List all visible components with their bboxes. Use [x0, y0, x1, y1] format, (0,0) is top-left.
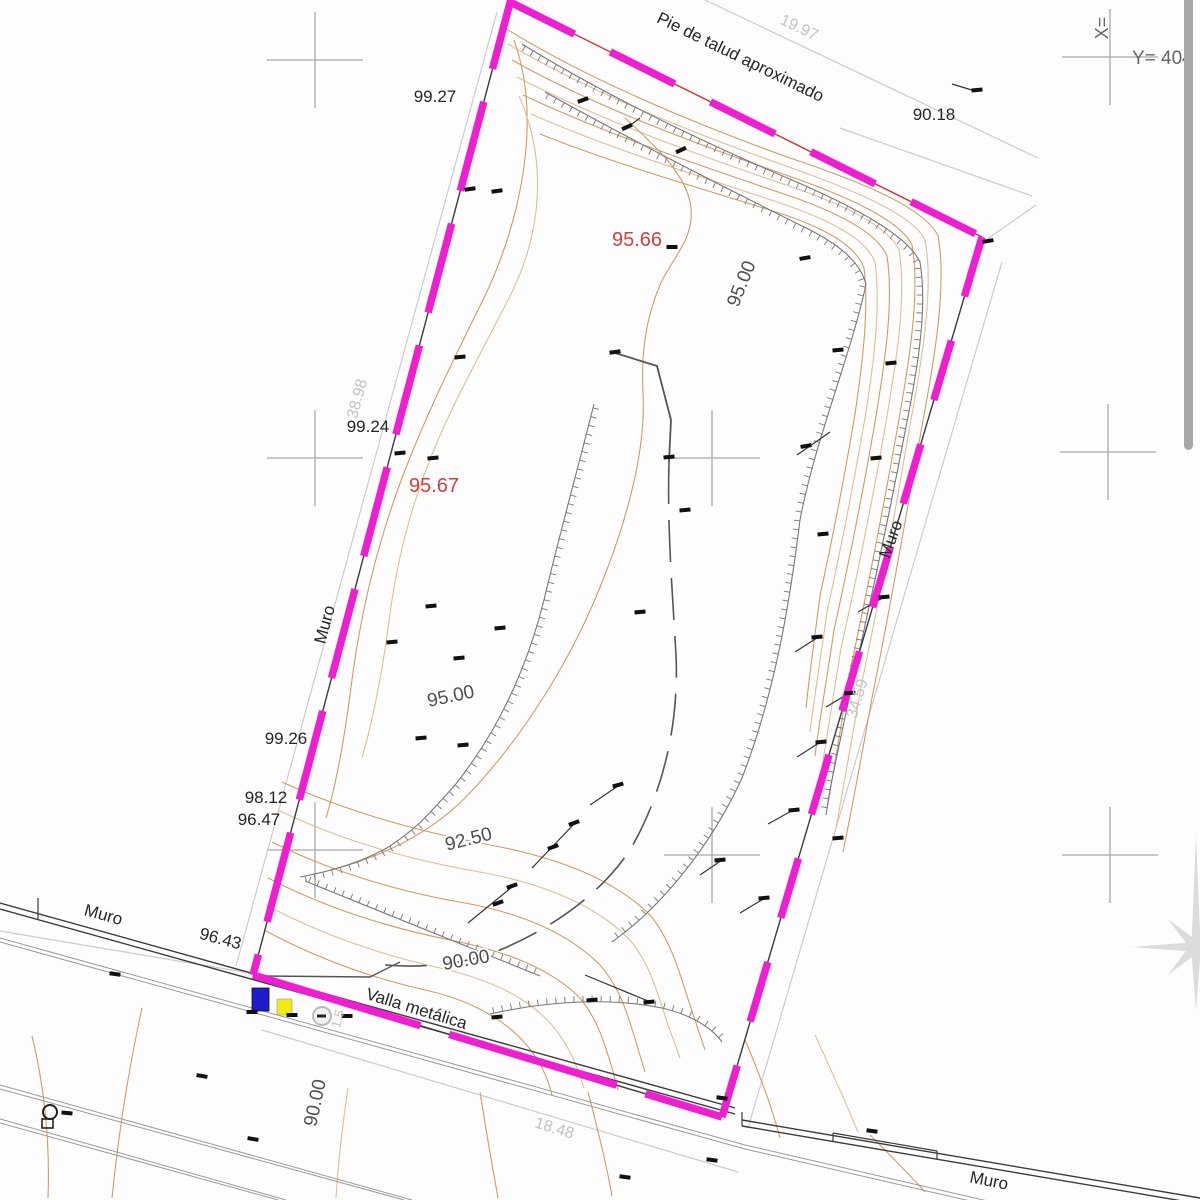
spot-leader-line [590, 786, 618, 805]
slope-tick [546, 591, 552, 592]
slope-tick [858, 294, 864, 295]
slope-tick [561, 103, 564, 108]
slope-tick [712, 1027, 716, 1032]
slope-tick [529, 651, 535, 653]
slope-tick [409, 918, 411, 924]
slope-tick [804, 476, 810, 478]
slope-tick [309, 877, 311, 883]
slope-tick [508, 701, 513, 704]
slope-tick [577, 469, 583, 471]
spot-elevation-marker [799, 255, 811, 261]
spot-elevation-marker [706, 1157, 717, 1162]
spot-elevation-marker [758, 896, 769, 901]
slope-tick [737, 195, 740, 200]
spot-leader-line [797, 432, 830, 455]
slope-tick [550, 573, 556, 574]
slope-tick [570, 495, 576, 497]
slope-tick [615, 933, 619, 938]
slope-tick [744, 756, 750, 758]
slope-tick [769, 211, 772, 216]
boundary-edge-right [722, 237, 982, 1117]
spot-elevation-marker [109, 971, 120, 976]
spot-elevation-marker [494, 626, 505, 631]
spot-elevation-marker [619, 1174, 630, 1179]
slope-tick [585, 116, 588, 121]
slope-tick [785, 219, 788, 224]
slope-tick [906, 392, 912, 393]
slope-tick [546, 94, 549, 99]
spot-elevation-marker [675, 146, 687, 154]
slope-tick [517, 961, 519, 967]
slope-tick [800, 493, 806, 494]
slope-tick [823, 798, 829, 799]
slope-tick [734, 781, 739, 784]
slope-tick [678, 871, 683, 875]
label-18-48: 18.48 [533, 1115, 576, 1143]
spot-elevation-marker [61, 1111, 72, 1116]
slope-tick [777, 215, 780, 220]
slope-tick [796, 511, 802, 512]
slope-tick [741, 765, 747, 767]
slope-tick [510, 1004, 511, 1010]
slope-tick [519, 1002, 520, 1008]
slope-tick [525, 660, 531, 662]
slope-tick [633, 107, 636, 112]
slope-tick [841, 355, 847, 357]
slope-tick [641, 145, 644, 150]
slope-tick [784, 591, 790, 592]
slope-tick [350, 894, 352, 900]
slope-tick [641, 111, 644, 116]
slope-tick [755, 722, 761, 724]
spot-elevation-marker [491, 1015, 502, 1020]
slope-tick [340, 867, 342, 873]
slope-tick [323, 872, 324, 878]
slope-tick [628, 922, 632, 927]
spot-elevation-marker [679, 508, 690, 513]
label-muro: Muro [968, 1168, 1010, 1194]
slope-tick [896, 445, 902, 446]
slope-tick [673, 127, 676, 132]
slope-tick [681, 1008, 683, 1014]
slope-tick [568, 504, 574, 506]
contour-line [112, 1008, 142, 1198]
label-98-12: 98.12 [245, 788, 288, 807]
slope-tick [519, 677, 525, 679]
slope-tick [721, 186, 724, 191]
slope-tick [694, 849, 699, 852]
slope-tick [635, 916, 639, 920]
slope-tick [580, 460, 586, 462]
slope-tick [548, 582, 554, 583]
slope-tick [776, 635, 782, 636]
slope-tick [900, 428, 906, 429]
slope-tick [763, 169, 765, 174]
slope-tick [911, 366, 917, 367]
slope-tick [509, 958, 511, 964]
slope-tick [794, 520, 800, 521]
slope-tick [868, 219, 871, 224]
slope-tick [544, 600, 550, 601]
spot-elevation-marker [196, 1073, 208, 1079]
label-99-27: 99.27 [414, 87, 457, 106]
road-edge-line [0, 1123, 278, 1200]
lamp-post-base [42, 1119, 53, 1128]
label-x-: X= [1092, 17, 1112, 40]
spot-elevation-marker [547, 843, 559, 851]
slope-tick [838, 363, 844, 365]
wall-line [742, 1126, 1200, 1200]
slope-tick [657, 154, 660, 159]
slope-tick [824, 240, 827, 245]
slope-tick [471, 763, 476, 766]
spot-elevation-marker [427, 456, 438, 461]
slope-tick [897, 239, 901, 244]
label-muro: Muro [82, 900, 124, 928]
site-plan-viewport: Pie de talud aproximado19.9790.1899.2795… [0, 0, 1200, 1200]
spot-elevation-marker [425, 604, 436, 609]
scrollbar-thumb[interactable] [1184, 0, 1193, 450]
contour-line [588, 1092, 612, 1196]
spot-elevation-marker [491, 188, 502, 193]
slope-tick [793, 223, 796, 228]
label-muro: Muro [310, 603, 338, 645]
slope-tick [486, 741, 491, 744]
slope-tick [708, 827, 713, 830]
slope-tick [673, 162, 676, 167]
slope-tick [566, 512, 572, 514]
slope-tick [455, 785, 460, 789]
slope-tick [828, 771, 834, 772]
slope-tick [772, 653, 778, 654]
spot-elevation-marker [866, 1128, 877, 1133]
slope-tick [811, 449, 817, 451]
label-96-43: 96.43 [197, 924, 243, 953]
slope-tick [584, 443, 590, 445]
slope-tick [367, 901, 369, 907]
label-95-67: 95.67 [409, 475, 459, 497]
label-1-5: 1.5 [328, 1008, 347, 1029]
slope-tick [689, 135, 692, 140]
spot-elevation-marker [612, 782, 624, 789]
slope-tick [915, 268, 921, 269]
dimension-line [705, 0, 1038, 158]
slope-tick [903, 410, 909, 411]
slope-tick [891, 472, 897, 473]
label-92-50: 92.50 [443, 824, 494, 856]
slope-tick [534, 634, 540, 636]
slope-tick [575, 478, 581, 480]
slope-tick [790, 547, 796, 548]
slope-tick [793, 529, 799, 530]
breakline-dashed [385, 462, 676, 966]
road-edge-line [0, 1089, 404, 1200]
slope-tick [461, 778, 466, 782]
slope-tick [660, 891, 664, 895]
slope-tick [866, 595, 872, 596]
slope-tick [809, 458, 815, 460]
slope-tick [718, 812, 723, 815]
spot-elevation-marker [247, 1136, 259, 1142]
slope-tick [434, 928, 436, 934]
spot-elevation-marker [492, 899, 504, 907]
spot-elevation-marker [577, 96, 589, 104]
slope-tick [778, 627, 784, 628]
slope-tick [699, 842, 704, 845]
slope-tick [845, 256, 849, 260]
slope-tick [400, 914, 402, 920]
slope-tick [577, 111, 580, 116]
label-19-97: 19.97 [777, 12, 821, 45]
slope-tick [522, 668, 528, 670]
spot-elevation-marker [714, 858, 725, 863]
slope-tick [559, 539, 565, 540]
slope-tick [672, 1005, 674, 1011]
slope-tick [726, 797, 731, 800]
slope-tick [628, 997, 629, 1003]
contour-line [480, 1092, 498, 1198]
slope-tick [902, 419, 908, 420]
contour-line [517, 77, 902, 780]
slope-tick [539, 617, 545, 619]
slope-tick [437, 805, 441, 809]
contour-line [540, 134, 866, 708]
slope-tick [586, 434, 592, 435]
slope-tick [512, 693, 517, 696]
slope-tick [779, 618, 785, 619]
slope-tick [425, 924, 427, 930]
slope-tick [493, 1007, 494, 1013]
contour-line [268, 878, 618, 1090]
slope-tick [822, 415, 828, 417]
slope-tick [833, 380, 839, 382]
slope-tick [762, 696, 768, 698]
slope-tick [665, 123, 668, 128]
slope-tick [537, 626, 543, 628]
site-plan-drawing: Pie de talud aproximado19.9790.1899.2795… [0, 0, 1200, 1200]
spot-elevation-marker [870, 456, 881, 461]
slope-hatch-line [490, 1002, 722, 1042]
slope-tick [591, 417, 597, 418]
slope-tick [729, 191, 732, 196]
slope-tick [593, 408, 599, 409]
slope-tick [766, 679, 772, 680]
slope-tick [502, 1005, 503, 1011]
slope-tick [713, 820, 718, 823]
slope-tick [838, 250, 842, 255]
slope-tick [332, 870, 334, 876]
label-38-98: 38.98 [344, 377, 371, 420]
slope-tick [683, 864, 688, 868]
slope-tick [821, 807, 827, 808]
slope-tick [417, 921, 419, 927]
slope-tick [782, 600, 788, 601]
slope-tick [589, 425, 595, 426]
slope-tick [555, 556, 561, 557]
slope-tick [764, 688, 770, 689]
slope-tick [530, 51, 533, 56]
slope-tick [704, 835, 709, 838]
slope-tick [404, 836, 408, 841]
spot-elevation-marker [506, 882, 518, 890]
slope-tick [788, 179, 790, 185]
slope-tick [867, 586, 873, 587]
slope-tick [827, 398, 833, 400]
slope-tick [889, 481, 895, 482]
slope-tick [349, 865, 351, 871]
slope-tick [884, 507, 890, 508]
slope-tick [334, 887, 336, 893]
dimension-line [840, 128, 1032, 196]
slope-tick [359, 897, 361, 903]
slope-tick [625, 103, 628, 108]
slope-tick [564, 521, 570, 523]
spot-elevation-marker [386, 640, 397, 645]
spot-leader-line [700, 860, 722, 875]
slope-tick [819, 423, 825, 425]
slope-tick [843, 346, 849, 348]
spot-elevation-marker [394, 451, 405, 456]
slope-tick [798, 502, 804, 503]
slope-tick [504, 709, 509, 712]
slope-tick [425, 818, 429, 822]
slope-tick [593, 120, 596, 125]
spot-elevation-marker [415, 736, 426, 741]
slope-tick [689, 1012, 691, 1017]
slope-tick [553, 64, 556, 69]
contour-line [815, 1035, 858, 1132]
slope-tick [805, 187, 807, 192]
spot-elevation-marker [788, 808, 799, 813]
slope-tick [757, 714, 763, 716]
slope-tick [738, 773, 744, 775]
slope-tick [722, 804, 727, 807]
slope-tick [835, 372, 841, 374]
slope-tick [443, 798, 447, 802]
road-edge-line [0, 1085, 412, 1200]
slope-tick [809, 231, 812, 236]
spot-elevation-marker [817, 532, 828, 537]
slope-tick [888, 489, 894, 490]
spot-elevation-marker [247, 1010, 258, 1014]
slope-tick [905, 401, 911, 402]
slope-tick [546, 60, 549, 65]
spot-elevation-marker [832, 348, 843, 353]
slope-tick [806, 467, 812, 469]
slope-tick [718, 1034, 723, 1038]
slope-tick [495, 725, 500, 728]
slope-tick [895, 454, 901, 455]
dimension-line [748, 262, 1002, 1128]
utility-yellow-symbol [277, 999, 292, 1015]
slope-tick [649, 115, 652, 120]
slope-tick [384, 908, 386, 914]
slope-tick [553, 565, 559, 566]
slope-tick [760, 705, 766, 707]
slope-tick [832, 245, 835, 250]
slope-tick [898, 436, 904, 437]
slope-tick [830, 389, 836, 391]
slope-tick [846, 338, 852, 340]
slope-tick [672, 878, 677, 882]
road-edge-line [0, 938, 1200, 1200]
spot-elevation-marker [287, 1013, 298, 1017]
slope-tick [824, 406, 830, 408]
slope-tick [547, 998, 548, 1004]
slope-tick [749, 739, 755, 741]
slope-tick [770, 662, 776, 663]
spot-elevation-marker [464, 186, 475, 191]
slope-tick [442, 931, 444, 937]
slope-tick [769, 670, 775, 671]
slope-tick [853, 312, 859, 314]
spot-elevation-marker [453, 656, 464, 661]
slope-tick [851, 320, 857, 322]
wall-line [833, 1133, 937, 1151]
compass-rose-icon [1132, 835, 1200, 1011]
label-90-00: 90.00 [441, 946, 491, 975]
slope-tick [466, 771, 471, 775]
breakline-corner [263, 962, 400, 977]
label-95-00: 95.00 [723, 258, 760, 310]
spot-leader-line [740, 898, 765, 913]
slope-tick [772, 172, 774, 178]
slope-tick [476, 756, 481, 759]
slope-tick [681, 131, 684, 136]
slope-tick [666, 884, 671, 888]
slope-tick [824, 789, 830, 790]
contour-line [523, 95, 889, 756]
slope-tick [848, 329, 854, 331]
spot-elevation-marker [634, 610, 645, 615]
slope-tick [688, 857, 693, 861]
slope-tick [835, 736, 841, 737]
slope-tick [582, 451, 588, 453]
slope-tick [515, 685, 520, 687]
slope-tick [637, 998, 638, 1004]
slope-tick [655, 1001, 656, 1007]
slope-tick [882, 516, 888, 517]
slope-tick [873, 560, 879, 561]
slope-tick [664, 1003, 665, 1009]
label-99-26: 99.26 [265, 729, 308, 748]
slope-tick [411, 830, 415, 835]
slope-tick [903, 245, 907, 249]
wall-line [0, 903, 735, 1108]
breakline-solid [612, 352, 671, 462]
slope-tick [914, 339, 920, 340]
slope-hatch-line [545, 92, 866, 942]
slope-tick [531, 643, 537, 645]
slope-tick [792, 538, 798, 539]
slope-tick [556, 998, 557, 1004]
slope-tick [375, 904, 377, 910]
slope-tick [522, 46, 525, 51]
dimension-line [986, 205, 1036, 240]
slope-hatch-line [305, 881, 540, 976]
slope-tick [654, 897, 658, 901]
slope-tick [648, 904, 652, 908]
slope-tick [713, 182, 716, 187]
slope-tick [755, 165, 757, 170]
slope-tick [869, 577, 875, 578]
slope-tick [537, 1000, 538, 1006]
slope-tick [534, 968, 536, 974]
slope-tick [557, 547, 563, 548]
slope-tick [850, 263, 855, 267]
slope-tick [561, 530, 567, 531]
contour-line [505, 28, 941, 852]
